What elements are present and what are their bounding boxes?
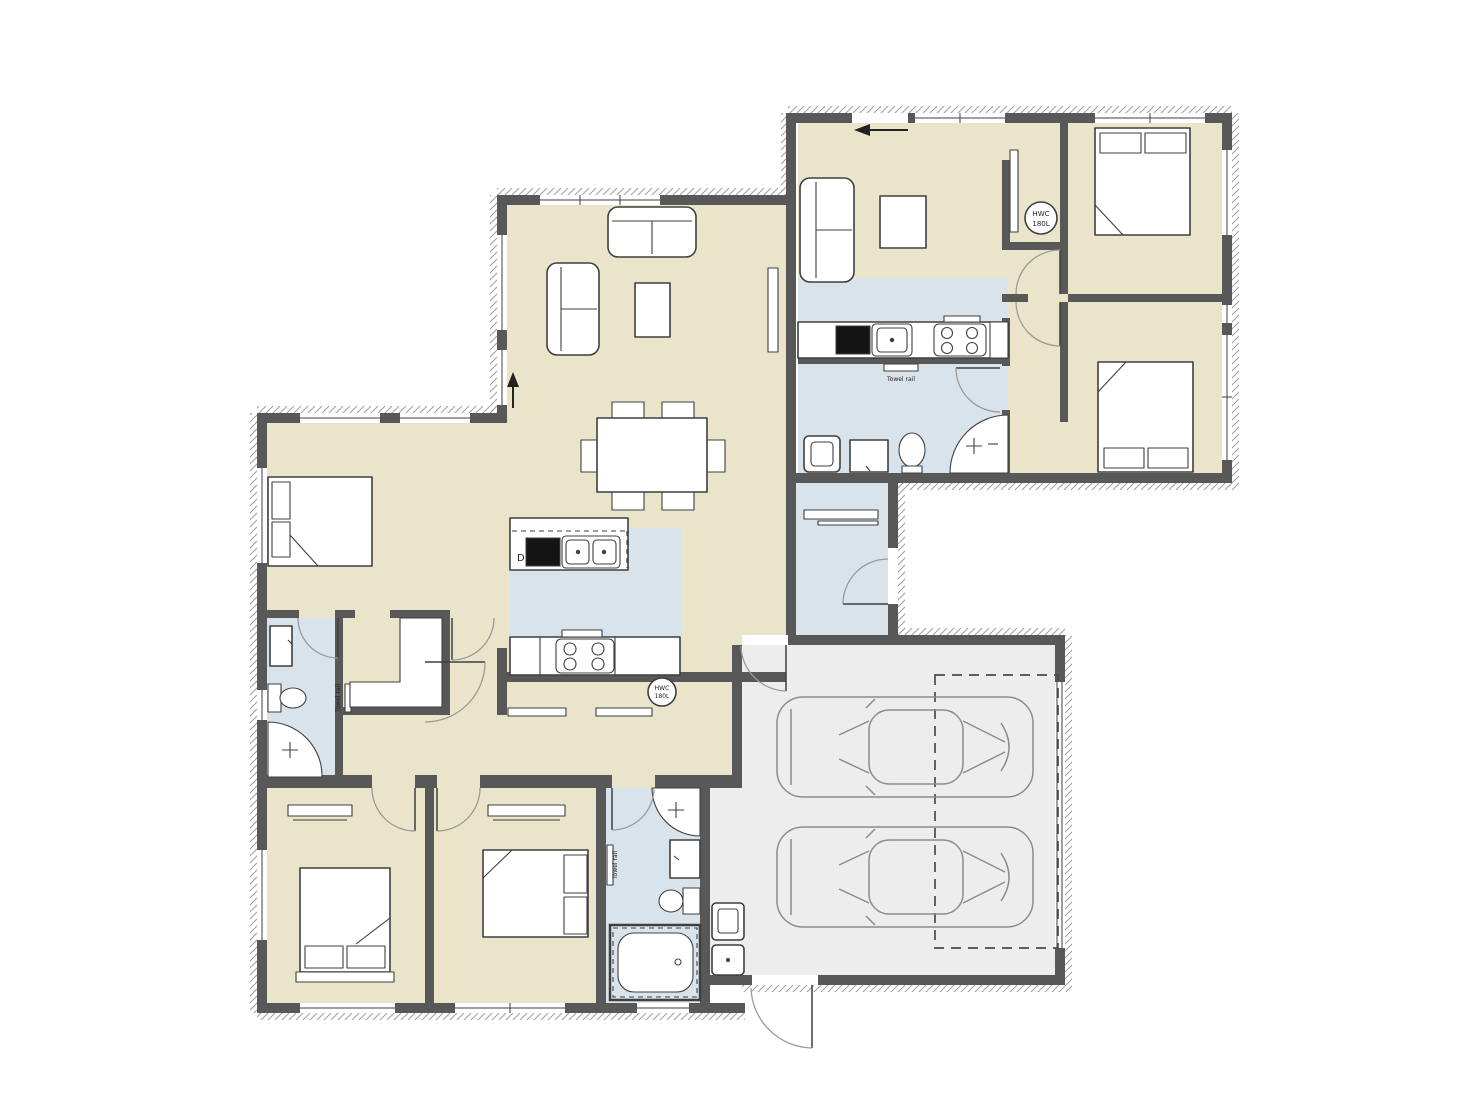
svg-text:Towel rail: Towel rail: [612, 851, 619, 880]
pillow: [272, 482, 290, 519]
oven-handle: [944, 316, 980, 322]
hot-water-cylinder-unit: HWC 180L: [1025, 202, 1057, 234]
dining-table: [597, 418, 707, 492]
floor-plan-drawing: D HWC 180L Towel rail: [0, 0, 1480, 1106]
svg-text:Towel rail: Towel rail: [886, 376, 915, 383]
svg-text:180L: 180L: [1032, 220, 1049, 228]
garage-floor: [710, 645, 1055, 975]
master-bed: [268, 477, 372, 566]
laundry-tub-garage: [712, 945, 744, 975]
unit-coffee-table: [880, 196, 926, 248]
svg-text:HWC: HWC: [655, 685, 670, 692]
dishwasher: [836, 326, 870, 354]
svg-text:Towel rail: Towel rail: [335, 684, 342, 713]
coffee-table: [635, 283, 670, 337]
pillow: [1145, 133, 1186, 153]
bathtub: [610, 925, 700, 1000]
sofa-left: [547, 263, 599, 355]
oven-handle: [562, 630, 602, 637]
pillow: [1100, 133, 1141, 153]
washing-machine: [804, 436, 840, 472]
vanity: [850, 440, 888, 472]
pillow: [1104, 448, 1144, 468]
pillow: [564, 897, 587, 934]
dishwasher-label: D: [517, 553, 525, 564]
vanity: [270, 626, 292, 666]
kitchen-sink: [872, 324, 912, 356]
unit-bed2: [1098, 362, 1193, 472]
dishwasher: [526, 538, 560, 566]
pillow: [564, 855, 587, 893]
garage-door: [1055, 682, 1065, 948]
kitchen-sink: [562, 536, 620, 568]
dining-chair: [612, 492, 644, 510]
unit-closet-door: [1010, 150, 1018, 232]
svg-text:HWC: HWC: [1032, 210, 1049, 218]
pillow: [305, 946, 343, 968]
bedroom3-bed: [483, 850, 588, 937]
dining-chair: [662, 492, 694, 510]
headboard: [296, 972, 394, 982]
bedroom2-bed: [296, 868, 394, 982]
unit-bed1: [1095, 128, 1190, 235]
svg-text:180L: 180L: [655, 693, 670, 700]
floor-plan-canvas: D HWC 180L Towel rail: [0, 0, 1480, 1106]
unit-sofa: [800, 178, 854, 282]
pillow: [272, 522, 290, 557]
sofa-top: [608, 207, 696, 257]
toilet: [899, 433, 925, 473]
tv-unit: [768, 268, 778, 352]
dining-chair: [707, 440, 725, 472]
hot-water-cylinder-main: HWC 180L: [648, 678, 676, 706]
vanity: [670, 840, 700, 878]
pillow: [347, 946, 385, 968]
pillow: [1148, 448, 1188, 468]
fridge: [990, 322, 1008, 358]
washing-machine-garage: [712, 903, 744, 940]
laundry-floor: [796, 483, 888, 635]
